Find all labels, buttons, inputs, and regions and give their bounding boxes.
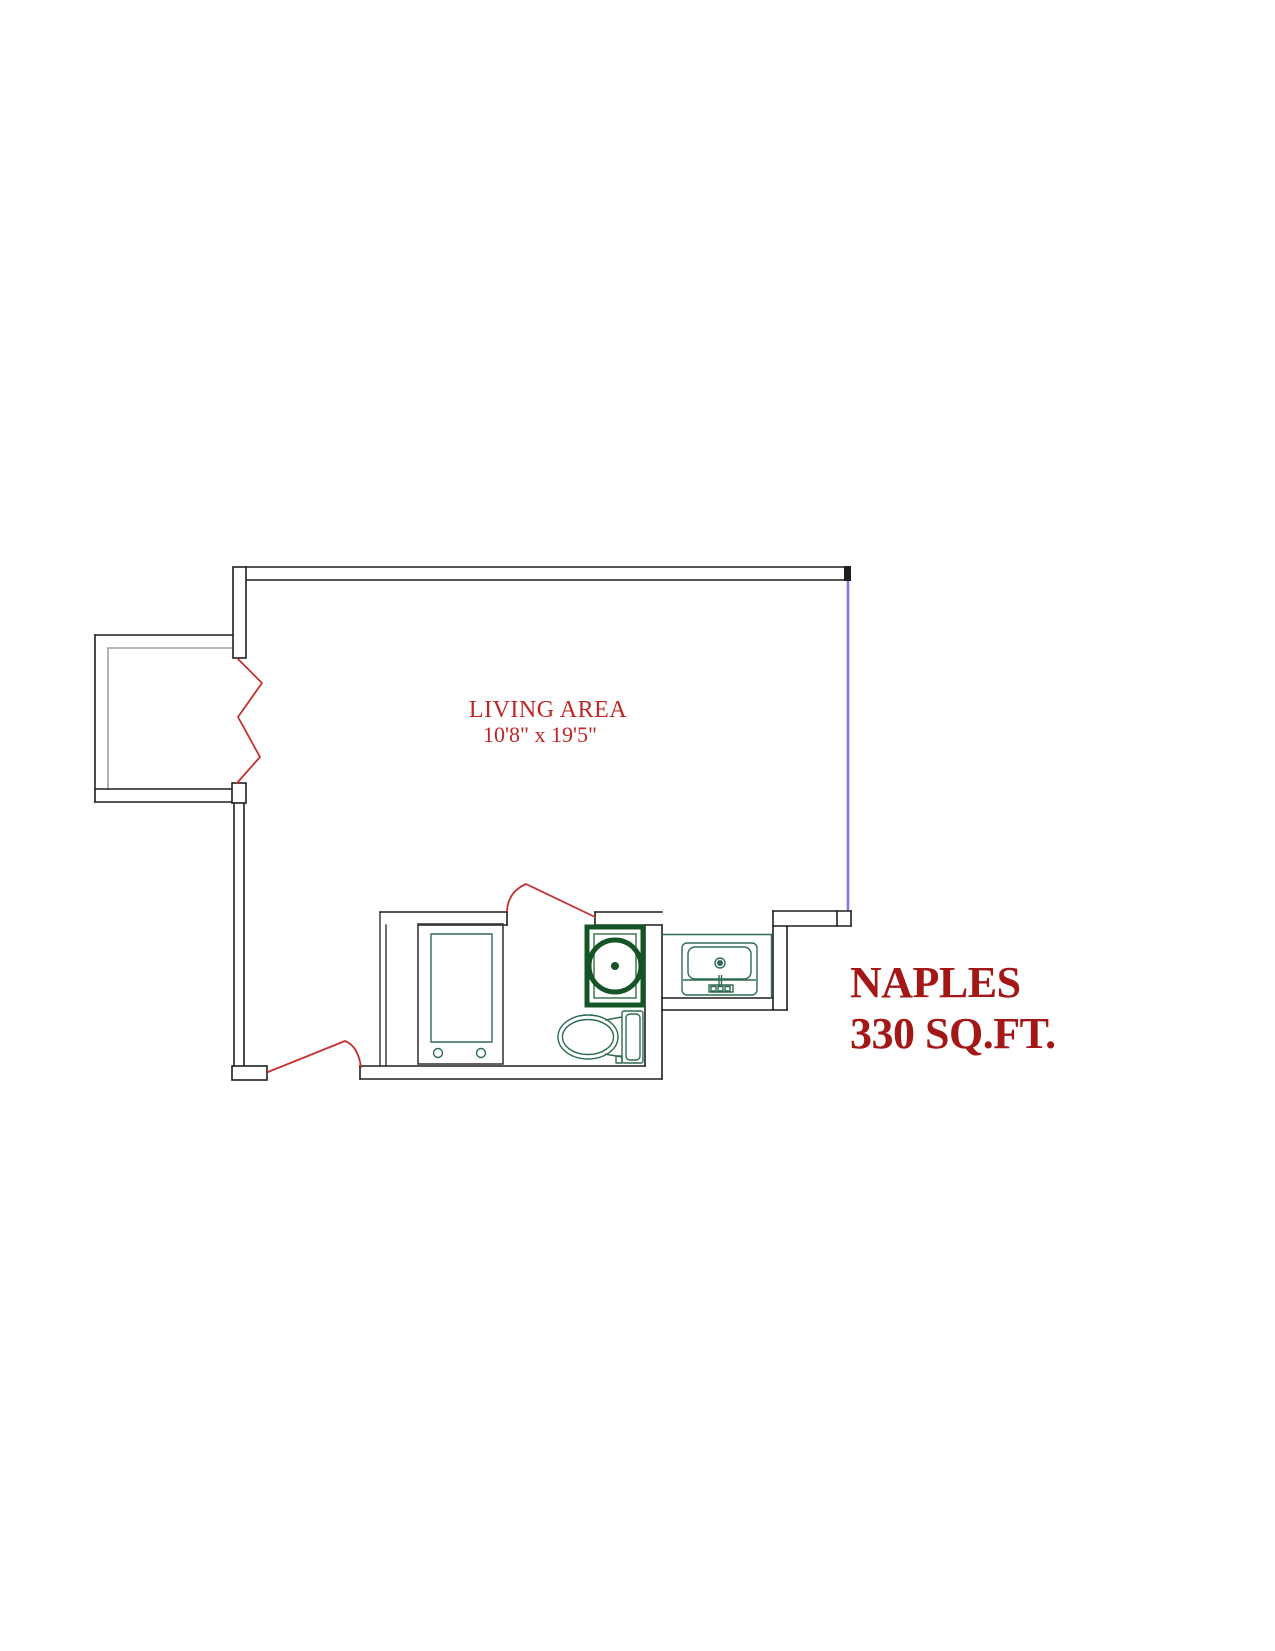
floorplan-drawing: LIVING AREA 10'8" x 19'5" NAPLES 330 SQ.… <box>0 0 1275 1651</box>
plan-name: NAPLES <box>850 958 1021 1007</box>
top-wall-end-cap <box>844 566 851 581</box>
shower-drain <box>611 962 619 970</box>
shower <box>587 927 643 1005</box>
toilet <box>558 1011 643 1063</box>
bathroom-walls <box>380 912 662 1079</box>
living-area-dimensions: 10'8" x 19'5" <box>483 722 597 747</box>
closet-knob-right <box>477 1049 486 1058</box>
balcony-walls <box>95 635 233 802</box>
wall-pillars <box>232 567 267 1080</box>
plan-labels: LIVING AREA 10'8" x 19'5" NAPLES 330 SQ.… <box>469 697 1056 1058</box>
pillar-entry-left <box>232 1066 267 1080</box>
wardrobe-closet <box>418 924 503 1064</box>
toilet-bowl <box>558 1015 618 1059</box>
sink-drain <box>717 960 723 966</box>
unit-walls <box>234 566 851 1079</box>
living-area-label: LIVING AREA <box>469 697 627 723</box>
bathroom-door-swing <box>507 884 595 917</box>
balcony-slider-zigzag <box>237 659 262 783</box>
floorplan-page: { "title": "Naples floor plan", "colors"… <box>0 0 1275 1651</box>
closet-knob-left <box>434 1049 443 1058</box>
pillar-top-left <box>233 567 246 658</box>
plan-area: 330 SQ.FT. <box>850 1009 1056 1058</box>
vanity-sink <box>662 935 772 999</box>
pillar-balcony-bottom <box>232 783 246 803</box>
entry-door-swing <box>268 1041 361 1072</box>
